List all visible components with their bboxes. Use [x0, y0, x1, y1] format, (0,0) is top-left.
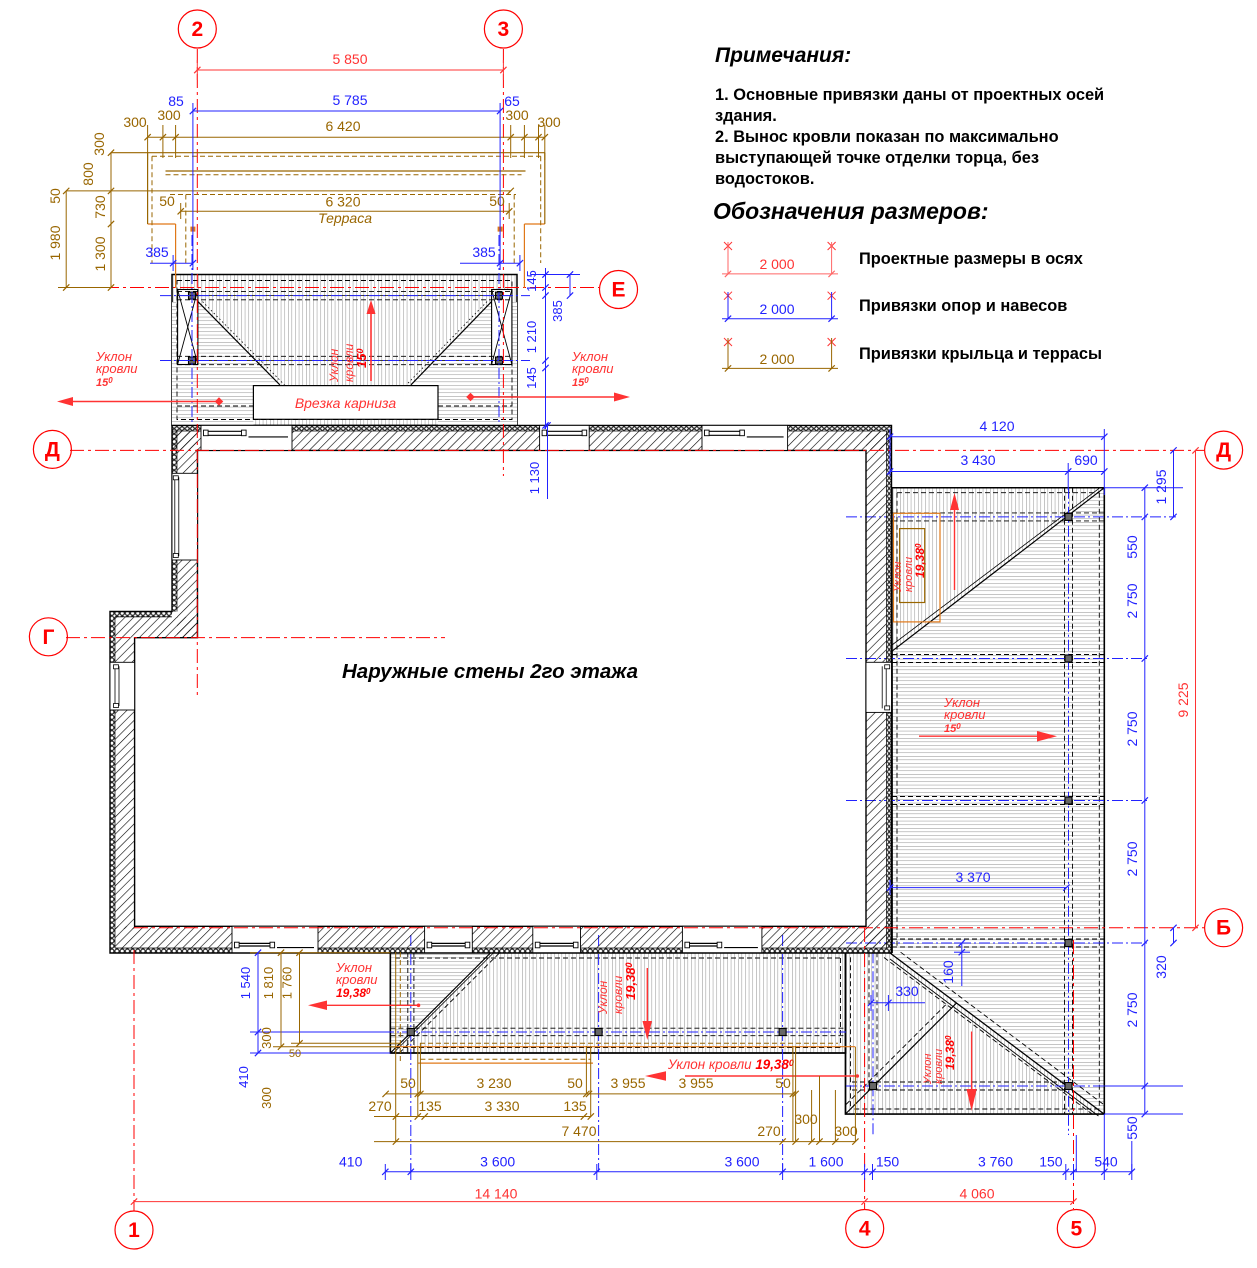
svg-text:270: 270	[757, 1123, 781, 1139]
svg-text:Д: Д	[45, 438, 60, 461]
svg-text:3 600: 3 600	[724, 1154, 759, 1170]
svg-text:50: 50	[489, 193, 505, 209]
svg-text:50: 50	[567, 1075, 583, 1091]
svg-text:3 330: 3 330	[484, 1098, 519, 1114]
svg-text:4 120: 4 120	[979, 418, 1014, 434]
svg-text:2 750: 2 750	[1124, 992, 1140, 1027]
svg-text:410: 410	[339, 1154, 363, 1170]
svg-text:385: 385	[550, 300, 565, 322]
svg-text:6 420: 6 420	[325, 118, 360, 134]
svg-text:65: 65	[504, 93, 520, 109]
svg-text:Е: Е	[611, 279, 625, 302]
svg-text:Уклон: Уклон	[596, 980, 610, 1015]
svg-text:1 295: 1 295	[1153, 469, 1169, 504]
svg-text:300: 300	[537, 114, 561, 130]
svg-text:14 140: 14 140	[475, 1186, 518, 1202]
svg-text:730: 730	[92, 195, 108, 219]
svg-text:5 850: 5 850	[332, 51, 367, 67]
svg-text:270: 270	[368, 1098, 392, 1114]
svg-text:135: 135	[418, 1098, 442, 1114]
svg-text:150: 150	[876, 1154, 900, 1170]
svg-text:300: 300	[157, 107, 181, 123]
svg-text:800: 800	[80, 162, 96, 186]
svg-text:150: 150	[1039, 1154, 1063, 1170]
svg-text:Примечания:: Примечания:	[715, 44, 851, 67]
svg-text:300: 300	[259, 1087, 274, 1109]
svg-text:здания.: здания.	[715, 107, 777, 125]
svg-text:Привязки крыльца и террасы: Привязки крыльца и террасы	[859, 345, 1102, 363]
svg-text:85: 85	[168, 93, 184, 109]
svg-text:кровли: кровли	[96, 361, 138, 376]
svg-text:кровли: кровли	[944, 707, 986, 722]
svg-text:1: 1	[128, 1219, 140, 1242]
svg-text:2. Вынос кровли показан по мак: 2. Вынос кровли показан по максимально	[715, 128, 1059, 146]
svg-text:кровли: кровли	[572, 361, 614, 376]
svg-text:50: 50	[289, 1048, 301, 1060]
svg-text:300: 300	[259, 1027, 274, 1049]
svg-text:300: 300	[123, 114, 147, 130]
svg-text:3 955: 3 955	[610, 1075, 645, 1091]
svg-text:Проектные размеры в осях: Проектные размеры в осях	[859, 250, 1083, 268]
svg-text:Привязки опор и навесов: Привязки опор и навесов	[859, 297, 1067, 315]
svg-text:3 370: 3 370	[955, 869, 990, 885]
svg-text:145: 145	[524, 367, 539, 389]
svg-text:3 430: 3 430	[960, 452, 995, 468]
svg-text:320: 320	[1153, 955, 1169, 979]
svg-text:50: 50	[775, 1075, 791, 1091]
svg-text:Г: Г	[42, 626, 54, 649]
svg-text:2 750: 2 750	[1124, 711, 1140, 746]
svg-text:1. Основные привязки даны от п: 1. Основные привязки даны от проектных о…	[715, 86, 1104, 104]
svg-text:2 750: 2 750	[1124, 841, 1140, 876]
svg-text:1 210: 1 210	[524, 321, 539, 354]
svg-text:5: 5	[1070, 1218, 1082, 1241]
svg-text:4 060: 4 060	[959, 1186, 994, 1202]
svg-text:160: 160	[940, 960, 956, 984]
svg-text:1 760: 1 760	[280, 967, 295, 1000]
svg-text:3 760: 3 760	[978, 1154, 1013, 1170]
svg-text:1 980: 1 980	[47, 225, 63, 260]
svg-text:Врезка карниза: Врезка карниза	[295, 395, 397, 411]
svg-text:300: 300	[834, 1123, 858, 1139]
svg-text:1 130: 1 130	[527, 462, 542, 495]
svg-text:6 320: 6 320	[325, 194, 360, 210]
svg-text:7 470: 7 470	[561, 1123, 596, 1139]
svg-text:19,380: 19,380	[913, 543, 927, 578]
svg-text:водостоков.: водостоков.	[715, 170, 814, 188]
svg-text:145: 145	[524, 270, 539, 292]
svg-text:50: 50	[159, 193, 175, 209]
svg-text:690: 690	[1074, 452, 1098, 468]
svg-text:3: 3	[498, 18, 510, 41]
svg-text:Д: Д	[1216, 439, 1231, 462]
svg-text:550: 550	[1124, 1116, 1140, 1140]
svg-text:3 230: 3 230	[476, 1075, 511, 1091]
svg-text:Уклон кровли 19,380: Уклон кровли 19,380	[667, 1057, 794, 1072]
svg-text:Терраса: Терраса	[318, 210, 372, 226]
svg-text:300: 300	[794, 1111, 818, 1127]
svg-text:300: 300	[91, 132, 107, 156]
svg-text:410: 410	[236, 1066, 251, 1088]
svg-text:385: 385	[145, 244, 169, 260]
svg-text:2 000: 2 000	[759, 351, 794, 367]
svg-text:540: 540	[1094, 1154, 1118, 1170]
svg-text:5 785: 5 785	[332, 92, 367, 108]
svg-text:2 000: 2 000	[759, 256, 794, 272]
svg-text:1 600: 1 600	[808, 1154, 843, 1170]
svg-text:19,380: 19,380	[943, 1035, 957, 1070]
svg-text:2: 2	[191, 18, 203, 41]
svg-text:550: 550	[1124, 535, 1140, 559]
svg-text:2 000: 2 000	[759, 301, 794, 317]
svg-text:1 300: 1 300	[92, 236, 108, 271]
svg-text:1 540: 1 540	[238, 967, 253, 1000]
svg-text:330: 330	[895, 983, 919, 999]
svg-text:300: 300	[505, 107, 529, 123]
svg-text:50: 50	[400, 1075, 416, 1091]
svg-text:385: 385	[472, 244, 496, 260]
svg-text:135: 135	[563, 1098, 587, 1114]
svg-text:Уклон: Уклон	[327, 348, 341, 383]
svg-text:50: 50	[47, 188, 63, 204]
svg-text:Б: Б	[1216, 917, 1231, 940]
svg-text:4: 4	[859, 1218, 871, 1241]
svg-text:3 600: 3 600	[480, 1154, 515, 1170]
svg-text:кровли: кровли	[336, 972, 378, 987]
svg-text:19,380: 19,380	[336, 986, 371, 1000]
svg-text:2 750: 2 750	[1124, 583, 1140, 618]
svg-text:3 955: 3 955	[678, 1075, 713, 1091]
svg-text:выступающей точке отделки торц: выступающей точке отделки торца, без	[715, 149, 1039, 167]
svg-text:1 810: 1 810	[261, 967, 276, 1000]
svg-text:Наружные стены 2го этажа: Наружные стены 2го этажа	[342, 660, 638, 683]
svg-text:Обозначения размеров:: Обозначения размеров:	[713, 198, 989, 224]
svg-text:9 225: 9 225	[1175, 682, 1191, 717]
svg-text:19,380: 19,380	[623, 962, 638, 1000]
